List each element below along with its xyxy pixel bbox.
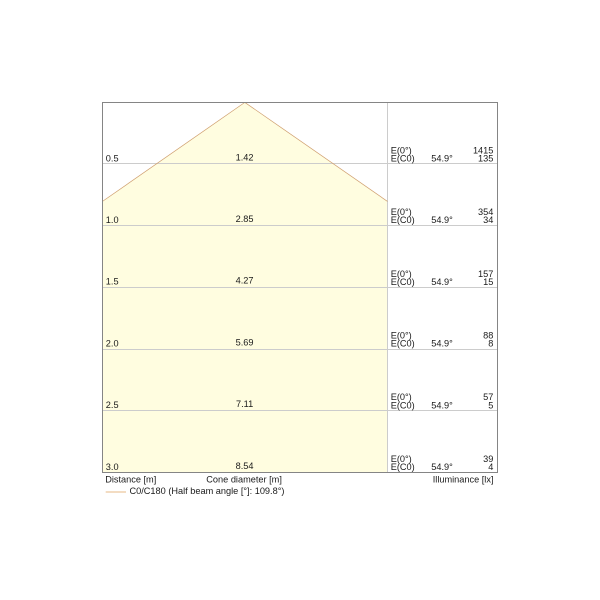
svg-text:4.27: 4.27: [236, 276, 254, 286]
svg-text:0.5: 0.5: [106, 153, 119, 163]
svg-text:2.85: 2.85: [236, 214, 254, 224]
svg-text:Cone diameter [m]: Cone diameter [m]: [206, 474, 282, 484]
svg-text:34: 34: [483, 215, 493, 225]
svg-text:2.5: 2.5: [106, 400, 119, 410]
svg-text:54.9°: 54.9°: [431, 215, 453, 225]
svg-text:5.69: 5.69: [236, 337, 254, 347]
svg-text:1.5: 1.5: [106, 277, 119, 287]
svg-text:E(C0): E(C0): [391, 339, 415, 349]
svg-text:54.9°: 54.9°: [431, 154, 453, 164]
svg-text:8: 8: [488, 339, 493, 349]
svg-text:3.0: 3.0: [106, 462, 119, 472]
svg-text:E(C0): E(C0): [391, 154, 415, 164]
svg-text:E(C0): E(C0): [391, 277, 415, 287]
svg-text:54.9°: 54.9°: [431, 400, 453, 410]
svg-text:1.42: 1.42: [236, 152, 254, 162]
svg-text:5: 5: [488, 400, 493, 410]
svg-text:54.9°: 54.9°: [431, 339, 453, 349]
svg-text:15: 15: [483, 277, 493, 287]
svg-text:135: 135: [478, 154, 493, 164]
svg-text:4: 4: [488, 462, 493, 472]
svg-text:2.0: 2.0: [106, 338, 119, 348]
svg-text:E(C0): E(C0): [391, 215, 415, 225]
svg-text:C0/C180 (Half beam angle [°]:: C0/C180 (Half beam angle [°]: 109.8°): [130, 486, 285, 496]
svg-text:8.54: 8.54: [236, 461, 254, 471]
svg-text:7.11: 7.11: [236, 399, 253, 409]
svg-text:E(C0): E(C0): [391, 462, 415, 472]
svg-text:Illuminance [lx]: Illuminance [lx]: [433, 474, 494, 484]
svg-text:1.0: 1.0: [106, 215, 119, 225]
svg-text:54.9°: 54.9°: [431, 462, 453, 472]
svg-text:E(C0): E(C0): [391, 400, 415, 410]
svg-text:54.9°: 54.9°: [431, 277, 453, 287]
svg-text:Distance [m]: Distance [m]: [105, 474, 156, 484]
